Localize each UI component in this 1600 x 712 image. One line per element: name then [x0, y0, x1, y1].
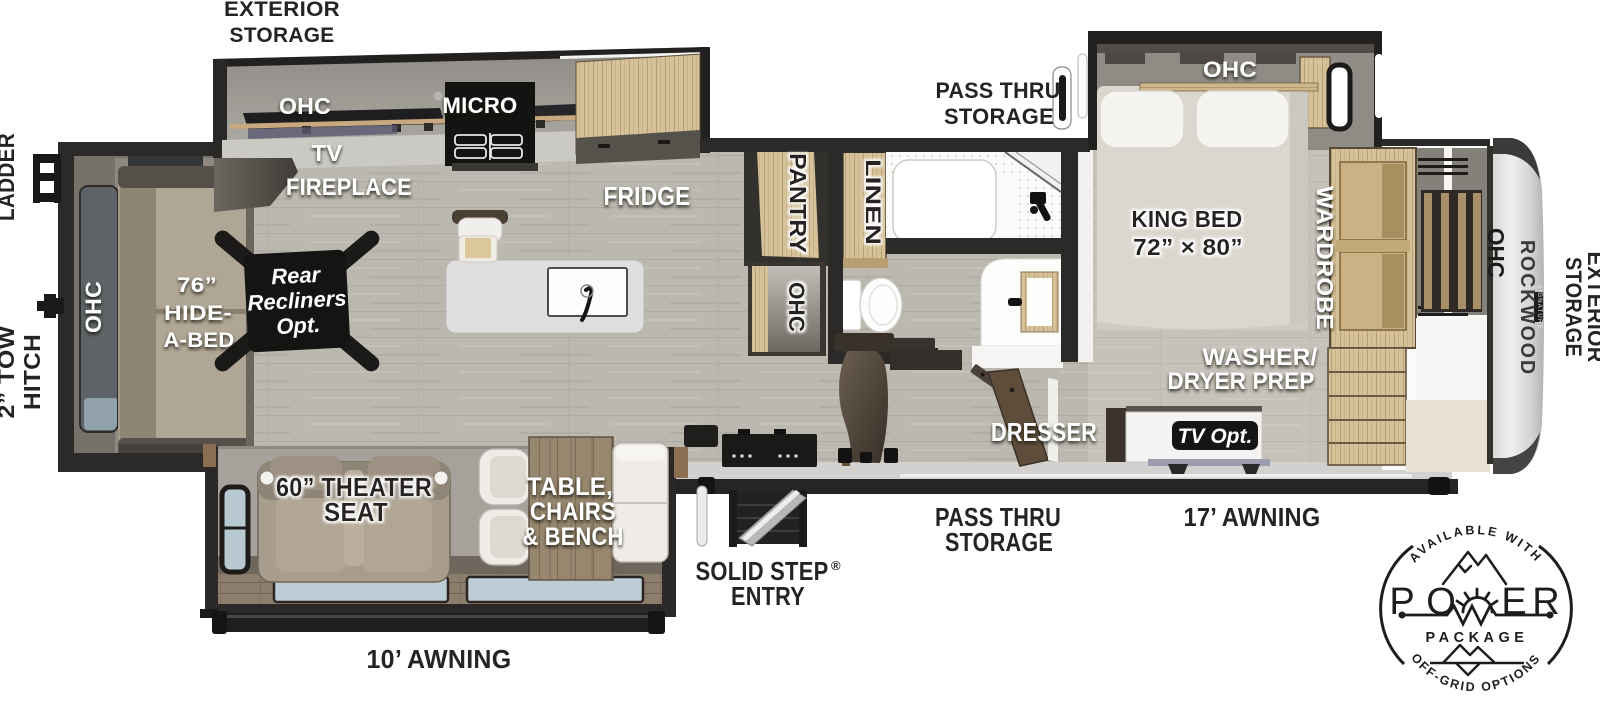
svg-text:STORAGE: STORAGE: [1561, 257, 1586, 357]
svg-text:2” TOW: 2” TOW: [0, 326, 19, 419]
svg-text:ENTRY: ENTRY: [731, 581, 805, 611]
svg-text:HIDE-: HIDE-: [164, 302, 232, 325]
svg-text:CHAIRS: CHAIRS: [530, 498, 616, 526]
svg-text:OHC: OHC: [1483, 228, 1509, 278]
svg-text:A-BED: A-BED: [164, 329, 235, 352]
svg-text:OHC: OHC: [784, 282, 809, 332]
svg-text:KING BED: KING BED: [1132, 206, 1243, 232]
svg-text:O: O: [1426, 581, 1456, 623]
svg-text:®: ®: [831, 558, 841, 573]
svg-text:OHC: OHC: [1203, 57, 1257, 82]
svg-text:FRIDGE: FRIDGE: [604, 181, 691, 211]
svg-text:LINEN: LINEN: [861, 159, 884, 245]
svg-text:76”: 76”: [177, 274, 217, 297]
svg-text:PASS THRU: PASS THRU: [936, 78, 1061, 103]
svg-text:EXTERIOR: EXTERIOR: [224, 0, 340, 21]
svg-text:WARDROBE: WARDROBE: [1312, 186, 1338, 330]
svg-text:TV: TV: [312, 140, 343, 166]
svg-text:ROCKWOOD: ROCKWOOD: [1516, 240, 1538, 376]
svg-text:HITCH: HITCH: [19, 334, 45, 410]
svg-text:Opt.: Opt.: [276, 312, 321, 339]
svg-text:WASHER/: WASHER/: [1203, 344, 1318, 371]
svg-text:TABLE,: TABLE,: [527, 473, 613, 501]
svg-text:SIGNATURE: SIGNATURE: [1536, 284, 1542, 329]
svg-text:E: E: [1501, 581, 1526, 623]
svg-text:Rear: Rear: [271, 262, 323, 290]
svg-text:R: R: [1532, 581, 1559, 623]
svg-text:OHC: OHC: [279, 93, 331, 119]
svg-text:& BENCH: & BENCH: [523, 523, 624, 551]
svg-text:10’ AWNING: 10’ AWNING: [367, 644, 512, 674]
svg-text:PANTRY: PANTRY: [785, 153, 811, 253]
svg-text:STORAGE: STORAGE: [230, 24, 335, 47]
svg-text:DRESSER: DRESSER: [991, 417, 1097, 447]
svg-text:17’ AWNING: 17’ AWNING: [1184, 502, 1321, 532]
svg-text:PACKAGE: PACKAGE: [1426, 630, 1529, 646]
svg-text:TV Opt.: TV Opt.: [1178, 425, 1253, 448]
svg-text:MICRO: MICRO: [443, 93, 518, 118]
svg-text:72” × 80”: 72” × 80”: [1133, 234, 1243, 260]
svg-text:OHC: OHC: [81, 281, 106, 333]
svg-text:STORAGE: STORAGE: [944, 104, 1054, 129]
svg-text:STORAGE: STORAGE: [945, 527, 1053, 557]
svg-text:FIREPLACE: FIREPLACE: [286, 174, 412, 201]
svg-text:SEAT: SEAT: [324, 497, 388, 527]
svg-text:Recliners: Recliners: [247, 285, 347, 315]
svg-text:LADDER: LADDER: [0, 133, 19, 221]
svg-text:DRYER PREP: DRYER PREP: [1168, 368, 1315, 395]
